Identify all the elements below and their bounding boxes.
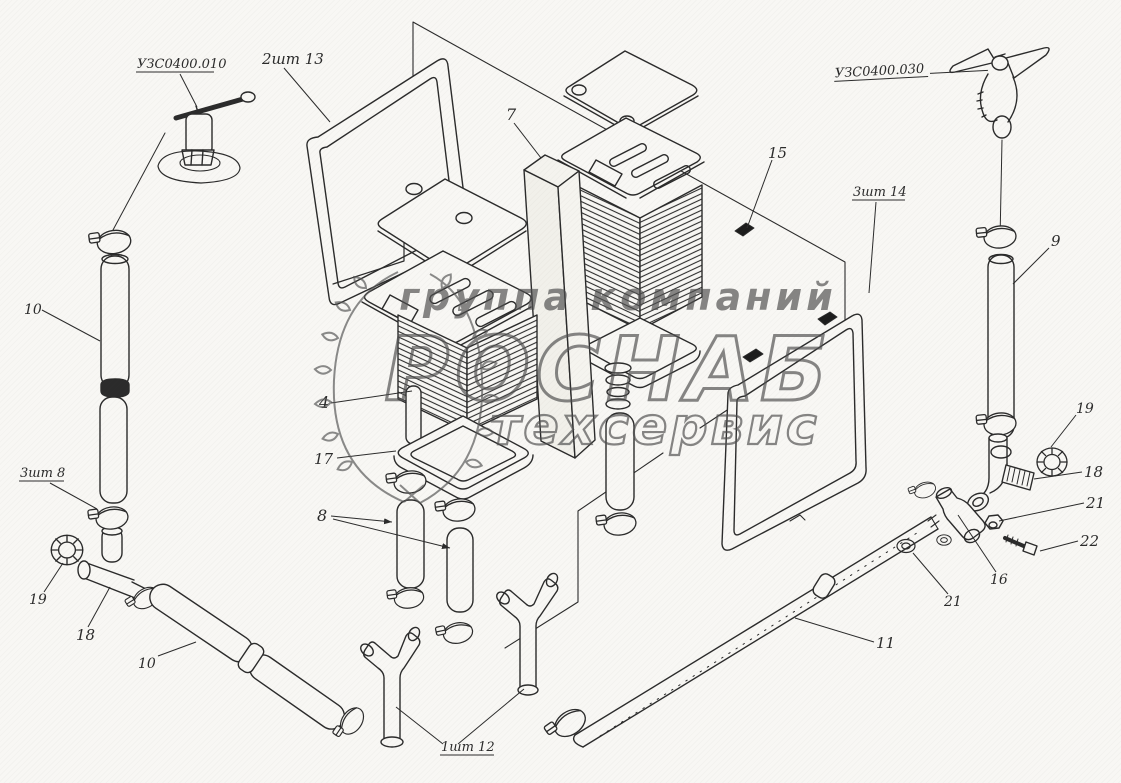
core-louver-plate: [562, 118, 701, 195]
diagram-canvas: УЗС0400.010 2шт 13 7 15 3шт 14 УЗС0400.0…: [0, 0, 1121, 783]
callout-21-lower: 21: [913, 553, 962, 610]
part-code-label: УЗС0400.030: [834, 62, 924, 82]
callout-8-qty: 3шт 8: [19, 466, 97, 509]
hose-10-left: [88, 228, 133, 532]
pipe-11: [544, 515, 939, 747]
wye-pipe-12-left: [358, 625, 421, 747]
item-10-label: 10: [138, 656, 156, 672]
qty-12-label: 1шт 12: [441, 740, 495, 755]
item-10-label: 10: [24, 302, 42, 318]
cap-19-right: [1037, 448, 1067, 476]
callout-7: 7: [506, 105, 541, 158]
washer-21: [937, 535, 951, 545]
item-4-label: 4: [318, 393, 329, 412]
item-18-label: 18: [1084, 463, 1103, 481]
callout-15: 15: [747, 144, 787, 228]
item-8-label: 8: [317, 506, 327, 525]
item-19-label: 19: [29, 592, 47, 608]
item-9-label: 9: [1051, 232, 1061, 250]
callout-10-left: 10: [24, 302, 100, 341]
item-17-label: 17: [314, 450, 334, 468]
callout-8: 8: [317, 506, 450, 548]
callout-18-left: 18: [76, 587, 110, 644]
hose-9: [976, 224, 1017, 458]
callout-part-code-left: УЗС0400.010: [136, 57, 226, 107]
callout-10-bottom: 10: [138, 642, 196, 672]
item-22-label: 22: [1079, 532, 1099, 550]
callout-11: 11: [795, 618, 895, 652]
hose-8-left-vertical: [100, 397, 127, 503]
callout-19-right: 19: [1051, 401, 1094, 447]
callout-9: 9: [1013, 232, 1061, 284]
hose-clamp: [596, 511, 638, 538]
qty-14-label: 3шт 14: [853, 185, 907, 200]
drain-valve-left: [113, 92, 255, 230]
part-code-label: УЗС0400.010: [137, 57, 226, 72]
callout-19-left: 19: [29, 563, 63, 608]
item-21-label: 21: [1085, 494, 1105, 512]
callout-22: 22: [1040, 532, 1099, 551]
nut-21: [985, 515, 1003, 529]
callout-frame-13: 2шт 13: [261, 50, 330, 122]
watermark-line-1: группа компаний: [399, 275, 837, 319]
tee-fitting-18-left: [78, 527, 162, 616]
clip-15-on-panel: [735, 223, 754, 236]
callout-frame-14: 3шт 14: [852, 185, 907, 293]
cap-19-left: [51, 535, 83, 564]
item-21-label: 21: [943, 594, 962, 610]
item-7-label: 7: [506, 105, 517, 124]
item-11-label: 11: [876, 634, 895, 652]
watermark-line-3: техсервис: [490, 397, 819, 457]
washer-21: [897, 540, 915, 553]
qty-8-label: 3шт 8: [20, 466, 65, 481]
qty-13-label: 2шт 13: [261, 50, 324, 68]
item-19-label: 19: [1076, 401, 1094, 417]
drain-valve-right: [950, 48, 1049, 240]
item-18-label: 18: [76, 626, 95, 644]
item-16-label: 16: [990, 572, 1008, 588]
callout-12: 1шт 12: [396, 689, 524, 755]
bolt-22: [1005, 535, 1037, 555]
wye-pipe-12-right: [494, 571, 559, 695]
scanned-parts-diagram: УЗС0400.010 2шт 13 7 15 3шт 14 УЗС0400.0…: [0, 0, 1121, 783]
hose-10-diagonal: [145, 579, 368, 743]
item-15-label: 15: [768, 144, 787, 162]
callout-21-right: 21: [999, 494, 1105, 521]
